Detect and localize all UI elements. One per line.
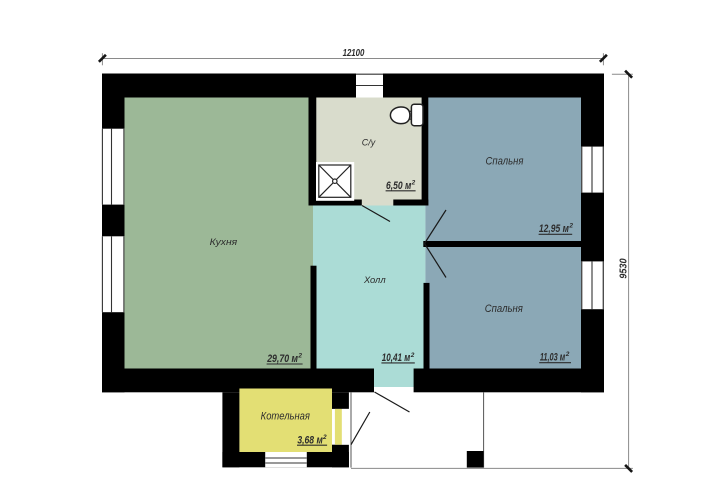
svg-text:С/у: С/у — [362, 137, 377, 148]
svg-text:29,70 м: 29,70 м — [266, 353, 298, 365]
svg-text:Спальня: Спальня — [486, 155, 524, 167]
svg-text:Котельная: Котельная — [261, 410, 310, 422]
svg-text:11,03 м: 11,03 м — [540, 352, 565, 364]
svg-text:Спальня: Спальня — [485, 303, 523, 315]
svg-text:2: 2 — [322, 434, 327, 441]
svg-text:2: 2 — [411, 179, 416, 186]
svg-text:9530: 9530 — [618, 258, 629, 279]
svg-text:2: 2 — [297, 353, 302, 360]
svg-text:12,95 м: 12,95 м — [539, 223, 569, 235]
svg-text:12100: 12100 — [343, 48, 365, 59]
svg-text:2: 2 — [565, 351, 570, 358]
svg-text:Кухня: Кухня — [210, 237, 238, 248]
svg-text:6,50 м: 6,50 м — [386, 180, 411, 192]
svg-text:Холл: Холл — [363, 275, 386, 286]
svg-text:3,68 м: 3,68 м — [297, 434, 322, 446]
svg-text:2: 2 — [568, 223, 573, 230]
svg-text:2: 2 — [410, 352, 415, 359]
